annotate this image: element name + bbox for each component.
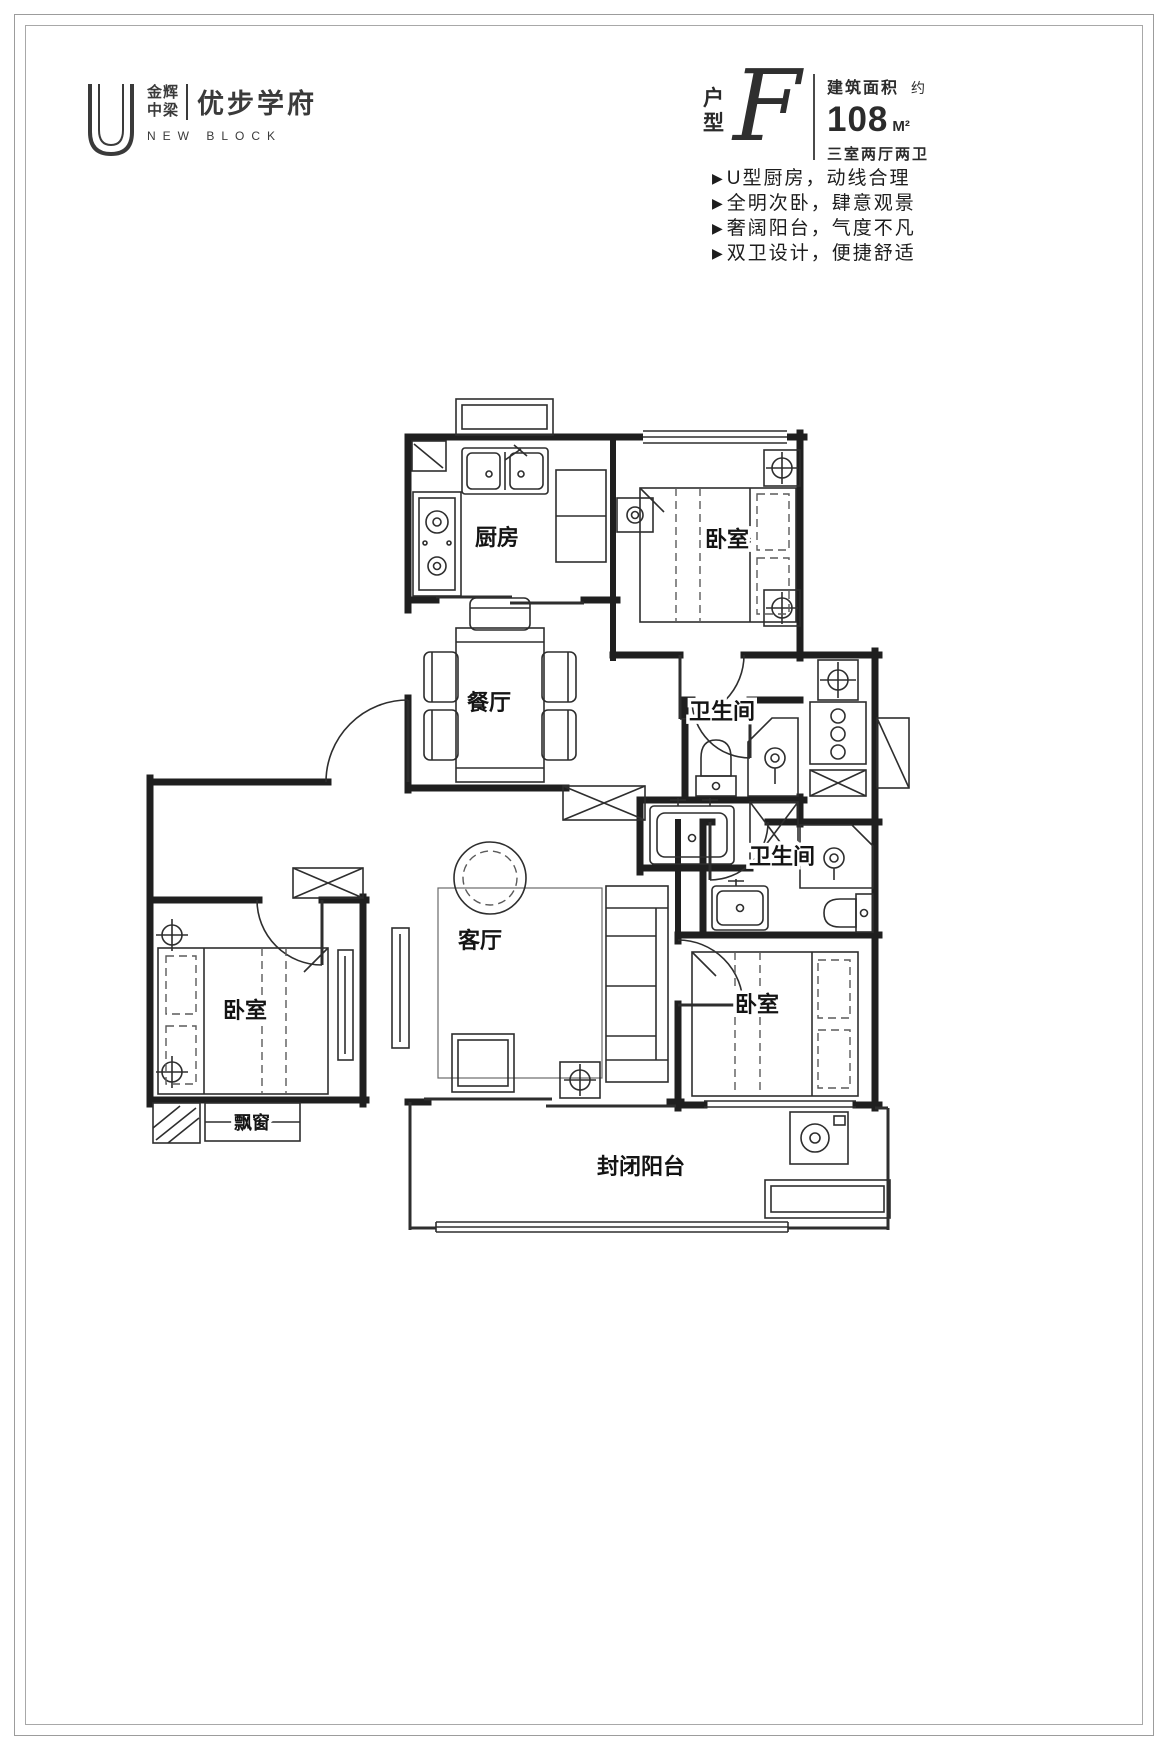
balcony-sliding-door [424,1099,676,1106]
chair-icon [424,710,458,760]
column-marker [764,590,800,626]
storage-tower [810,702,866,764]
room-label-bedroom-top: 卧室 [705,527,749,552]
room-label-living: 客厅 [458,928,502,953]
room-label-bathroom-lower: 卫生间 [749,844,815,869]
room-label-kitchen: 厨房 [475,525,519,550]
column-marker [156,919,188,951]
round-table-icon [454,842,526,914]
shower-icon [748,718,798,796]
balcony-step [875,1108,888,1136]
chair-icon [542,652,576,702]
room-bathroom-upper [696,718,798,796]
bay-window [153,1103,300,1143]
exterior-box [765,1180,890,1218]
hall-wardrobe [563,786,645,820]
fridge-icon [556,470,606,562]
kitchen-sink-icon [462,445,548,494]
flue-box-inner [462,405,547,429]
washbasin-niche [650,798,734,864]
room-label-bedroom-right: 卧室 [735,992,779,1017]
secondary-walls [322,597,888,1230]
floorplan-drawing: 厨房 卧室 餐厅 卫生间 卫生间 客厅 卧室 卧室 飘窗 封闭阳台 [0,0,1168,1750]
corner-cabinet-flap [414,444,443,468]
column-marker [818,660,858,700]
bed-icon [640,488,796,622]
chair-icon [424,652,458,702]
ac-platform [877,718,909,788]
column-marker [156,1056,188,1088]
tv-panel-icon [338,950,353,1060]
room-living [338,842,668,1098]
window [704,1101,856,1107]
chair-icon [542,710,576,760]
wardrobe-icon [293,868,363,898]
tv-board-icon [392,928,409,1048]
column-marker [560,1062,600,1098]
column-marker [764,450,800,486]
toilet-icon [824,894,873,932]
room-label-bay-window: 飘窗 [234,1112,270,1133]
room-label-bathroom-upper: 卫生间 [689,699,755,724]
floorplan-page: { "logo": { "brand_line1": "金辉", "brand_… [0,0,1168,1750]
bedroom-right-door-arc [678,940,743,1005]
room-bathroom-lower [712,825,873,932]
washing-machine-icon [790,1112,848,1164]
rug [438,888,602,1078]
nightstand [617,498,653,532]
utility-strip [810,660,909,796]
toilet-icon [696,740,736,796]
room-label-bedroom-left: 卧室 [223,998,267,1023]
washbasin-icon [712,879,768,930]
bedroom-left-door-arc [257,900,322,965]
stool-icon [452,1034,514,1092]
sofa-icon [606,886,668,1082]
balcony-window [436,1222,788,1232]
shaft-box [810,770,866,796]
room-kitchen [412,399,606,596]
hatch-box [153,1103,200,1143]
room-label-dining: 餐厅 [467,690,511,715]
room-label-balcony: 封闭阳台 [597,1154,685,1179]
entry-door-arc [326,700,408,782]
bed-icon [692,952,858,1096]
stove-icon [413,492,461,596]
fixtures [153,399,909,1232]
